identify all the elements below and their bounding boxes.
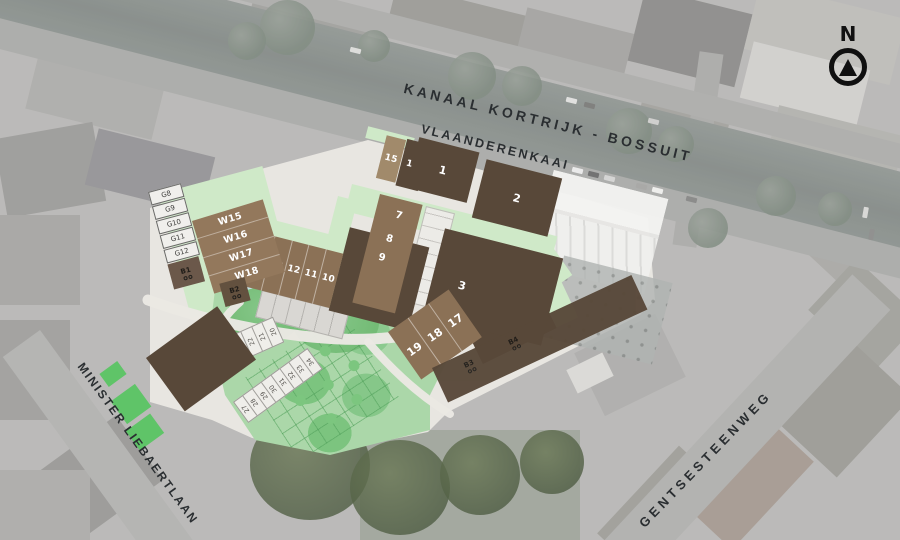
building-label: 17: [445, 310, 465, 330]
garage-label: G8: [160, 189, 172, 199]
building-label: 19: [404, 339, 424, 359]
orchard-tree: [349, 392, 364, 407]
compass-north-label: N: [824, 24, 872, 44]
bike-storage-b3[interactable]: B3: [463, 358, 478, 374]
parking-stall-number: 20: [268, 327, 279, 338]
parking-stall-number: 21: [257, 331, 268, 342]
compass: N: [824, 24, 872, 86]
building-label: 2: [512, 191, 523, 206]
bicycle-icon: [231, 293, 241, 299]
garage-label: G11: [170, 232, 186, 243]
building-label: 9: [377, 252, 387, 264]
building-label: 1: [438, 163, 449, 178]
park-tree: [350, 440, 450, 535]
orchard-tree: [321, 377, 336, 392]
bicycle-icon: [183, 274, 193, 280]
orchard-tree: [318, 343, 333, 358]
north-arrow-icon: [829, 48, 867, 86]
orchard-tree: [324, 411, 339, 426]
garage-label: G9: [164, 204, 176, 214]
building-label: 11: [303, 268, 318, 281]
building-label: 15: [383, 153, 398, 166]
park-tree: [520, 430, 584, 494]
garage-label: G10: [166, 218, 182, 229]
bike-storage-b4[interactable]: B4: [507, 335, 522, 351]
orchard-tree: [346, 358, 361, 373]
parking-stall-number: 22: [246, 336, 257, 347]
building-label: 8: [385, 233, 395, 245]
building-label: 18: [425, 325, 445, 345]
building-label: 10: [321, 272, 336, 285]
building-label: 3: [457, 279, 468, 294]
building-label: 7: [394, 210, 404, 222]
building-label: 12: [286, 264, 301, 277]
orchard-tree: [293, 393, 308, 408]
site-plan-map: 26252423222120 2728293031323334 15 16 1 …: [0, 0, 900, 540]
parking-stall-number: 34: [304, 356, 315, 367]
park-tree: [440, 435, 520, 515]
garage-label: G12: [174, 247, 190, 258]
